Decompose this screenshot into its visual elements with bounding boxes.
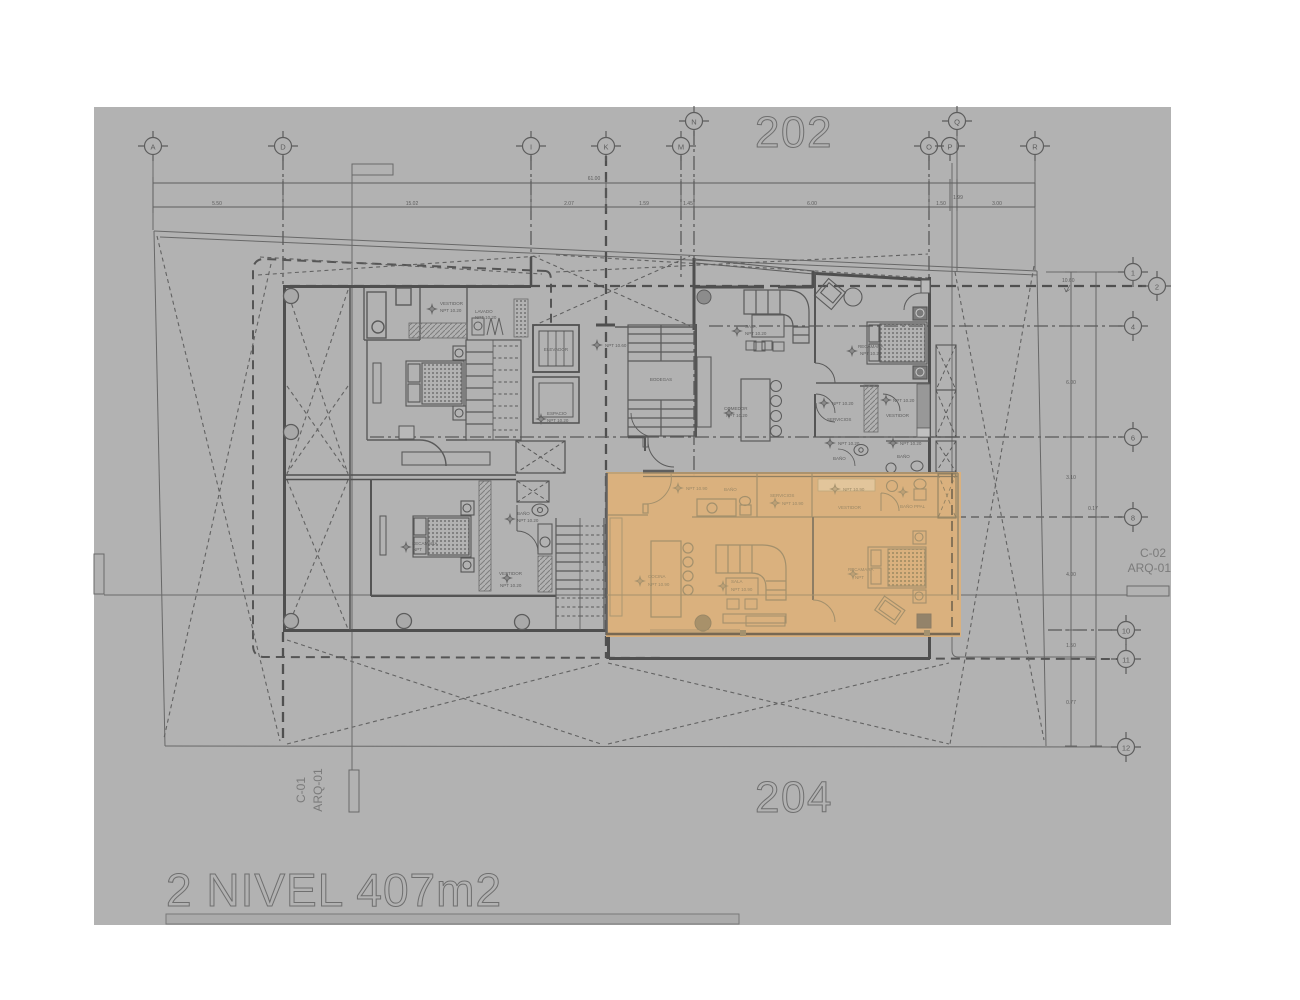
svg-text:12: 12 bbox=[1122, 744, 1130, 753]
svg-text:NPT 10.90: NPT 10.90 bbox=[731, 587, 753, 592]
svg-text:A: A bbox=[150, 143, 155, 152]
svg-text:C-01: C-01 bbox=[294, 777, 308, 803]
svg-text:NPT 10.20: NPT 10.20 bbox=[893, 398, 915, 403]
svg-text:ESPACIO: ESPACIO bbox=[547, 411, 567, 416]
svg-text:6.00: 6.00 bbox=[1066, 380, 1076, 386]
svg-text:VESTIDOR: VESTIDOR bbox=[838, 505, 862, 510]
svg-text:ARQ-01: ARQ-01 bbox=[1128, 561, 1172, 575]
svg-text:8: 8 bbox=[1131, 514, 1135, 523]
svg-text:NPT 10.20: NPT 10.20 bbox=[900, 441, 922, 446]
svg-text:O: O bbox=[926, 143, 932, 152]
svg-text:2: 2 bbox=[1155, 283, 1159, 292]
svg-text:BAÑO: BAÑO bbox=[833, 455, 846, 461]
svg-text:I: I bbox=[530, 143, 532, 152]
svg-text:NPT 10.20: NPT 10.20 bbox=[440, 308, 462, 313]
svg-text:6: 6 bbox=[1131, 434, 1135, 443]
svg-text:NPT 10.90: NPT 10.90 bbox=[782, 501, 804, 506]
svg-text:RECAMARA: RECAMARA bbox=[858, 344, 884, 349]
svg-text:BAÑO: BAÑO bbox=[724, 486, 737, 492]
svg-text:BODEGAS: BODEGAS bbox=[650, 377, 672, 382]
svg-text:NPT 10.90: NPT 10.90 bbox=[843, 487, 865, 492]
svg-text:4.00: 4.00 bbox=[1066, 572, 1076, 578]
svg-text:VESTIDOR: VESTIDOR bbox=[440, 301, 464, 306]
svg-text:ELEVADOR: ELEVADOR bbox=[544, 347, 569, 352]
svg-text:4: 4 bbox=[1131, 323, 1135, 332]
svg-text:1.50: 1.50 bbox=[936, 201, 946, 207]
svg-text:R: R bbox=[1032, 143, 1038, 152]
svg-text:11: 11 bbox=[1122, 656, 1130, 665]
svg-text:Q: Q bbox=[954, 118, 960, 127]
svg-text:6.00: 6.00 bbox=[807, 201, 817, 207]
svg-text:204: 204 bbox=[755, 773, 833, 822]
svg-text:1.99: 1.99 bbox=[953, 195, 963, 201]
svg-text:NPT 10.90: NPT 10.90 bbox=[686, 486, 708, 491]
svg-text:COMEDOR: COMEDOR bbox=[724, 406, 748, 411]
svg-text:1.45: 1.45 bbox=[683, 201, 693, 207]
svg-text:NPT 10.90: NPT 10.90 bbox=[648, 582, 670, 587]
svg-text:2 NIVEL 407m2: 2 NIVEL 407m2 bbox=[166, 864, 502, 916]
svg-text:D: D bbox=[280, 143, 286, 152]
svg-text:0.17: 0.17 bbox=[1088, 506, 1098, 512]
svg-text:NPT: NPT bbox=[413, 547, 422, 552]
svg-text:P: P bbox=[947, 143, 952, 152]
svg-text:1: 1 bbox=[1131, 269, 1135, 278]
svg-text:BAÑO: BAÑO bbox=[517, 510, 530, 516]
svg-text:NPT 10.20: NPT 10.20 bbox=[547, 418, 569, 423]
svg-text:NPT 10.20: NPT 10.20 bbox=[745, 331, 767, 336]
svg-text:NPT 10.20: NPT 10.20 bbox=[500, 583, 522, 588]
svg-text:ARQ-01: ARQ-01 bbox=[311, 768, 325, 812]
svg-text:COCINA: COCINA bbox=[648, 574, 666, 579]
svg-text:K: K bbox=[603, 143, 608, 152]
svg-text:5.50: 5.50 bbox=[212, 201, 222, 207]
svg-text:RECAMARA: RECAMARA bbox=[412, 541, 438, 546]
svg-text:61.00: 61.00 bbox=[588, 176, 601, 182]
svg-text:SALA: SALA bbox=[731, 579, 743, 584]
svg-text:M: M bbox=[678, 143, 684, 152]
svg-text:3.00: 3.00 bbox=[992, 201, 1002, 207]
svg-text:1.59: 1.59 bbox=[639, 201, 649, 207]
svg-text:NPT 10.20: NPT 10.20 bbox=[475, 315, 497, 320]
svg-text:NPT 10.20: NPT 10.20 bbox=[832, 401, 854, 406]
svg-text:NPT 10.20: NPT 10.20 bbox=[726, 413, 748, 418]
svg-text:BAÑO PPAL: BAÑO PPAL bbox=[900, 503, 926, 509]
svg-text:NPT: NPT bbox=[855, 575, 864, 580]
svg-text:C-02: C-02 bbox=[1140, 546, 1166, 560]
svg-text:BAÑO: BAÑO bbox=[897, 453, 910, 459]
svg-text:10: 10 bbox=[1122, 627, 1130, 636]
svg-text:1.50: 1.50 bbox=[1066, 643, 1076, 649]
svg-text:SERVICIOS: SERVICIOS bbox=[827, 417, 851, 422]
svg-text:NPT 10.20: NPT 10.20 bbox=[860, 351, 882, 356]
svg-text:SERVICIOS: SERVICIOS bbox=[770, 493, 794, 498]
svg-text:VESTIDOR: VESTIDOR bbox=[499, 571, 523, 576]
svg-text:10.60: 10.60 bbox=[1062, 278, 1075, 284]
svg-text:202: 202 bbox=[755, 108, 833, 157]
svg-text:3.10: 3.10 bbox=[1066, 475, 1076, 481]
svg-text:N: N bbox=[691, 118, 696, 127]
svg-text:RECAMARA: RECAMARA bbox=[848, 567, 874, 572]
svg-text:2.07: 2.07 bbox=[564, 201, 574, 207]
svg-text:NPT 10.20: NPT 10.20 bbox=[838, 441, 860, 446]
svg-text:0.77: 0.77 bbox=[1066, 700, 1076, 706]
svg-text:SALA: SALA bbox=[745, 324, 757, 329]
svg-text:NPT 10.60: NPT 10.60 bbox=[605, 343, 627, 348]
svg-text:LAVADO: LAVADO bbox=[475, 309, 493, 314]
svg-text:VESTIDOR: VESTIDOR bbox=[886, 413, 910, 418]
svg-text:NPT 10.20: NPT 10.20 bbox=[517, 518, 539, 523]
svg-text:15.02: 15.02 bbox=[406, 201, 419, 207]
